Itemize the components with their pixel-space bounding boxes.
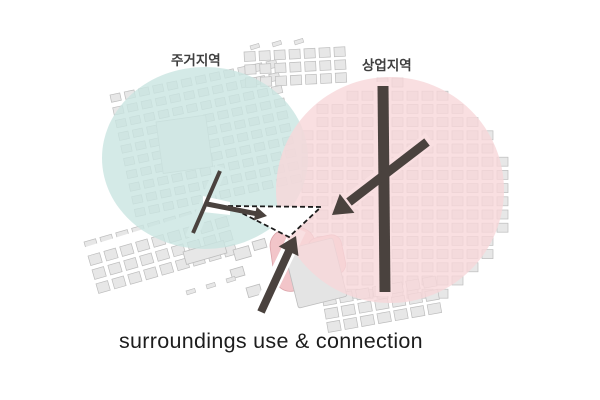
building — [360, 314, 375, 326]
building — [112, 276, 126, 289]
building — [319, 47, 330, 57]
street-dash-building — [272, 40, 282, 46]
building — [497, 223, 508, 232]
building — [290, 75, 301, 85]
building — [128, 271, 142, 284]
building — [358, 301, 373, 313]
building — [289, 49, 300, 59]
building — [394, 309, 409, 321]
street-dash-building — [250, 43, 260, 49]
building — [377, 311, 392, 323]
building — [244, 51, 255, 61]
building — [259, 51, 270, 61]
building — [110, 93, 121, 102]
building — [108, 262, 122, 275]
building — [305, 74, 316, 84]
building — [92, 267, 106, 280]
diagram-caption: surroundings use & connection — [119, 329, 423, 353]
diagram-canvas: 주거지역 상업지역 surroundings use & connection — [0, 0, 600, 400]
building — [427, 303, 442, 315]
building — [341, 304, 356, 316]
street-dash-building — [226, 276, 236, 282]
site-analysis-diagram: 주거지역 상업지역 surroundings use & connection — [0, 0, 600, 400]
building — [260, 64, 271, 74]
building — [124, 257, 138, 270]
commercial-main-road — [383, 86, 385, 292]
building — [245, 64, 256, 74]
building — [410, 306, 425, 318]
building — [334, 47, 345, 57]
building — [320, 73, 331, 83]
building — [324, 307, 339, 319]
building — [335, 60, 346, 70]
building — [140, 253, 154, 266]
building — [304, 48, 315, 58]
building — [159, 262, 173, 275]
residential-zone-label: 주거지역 — [171, 52, 221, 68]
street-dash-building — [186, 288, 196, 294]
building — [343, 317, 358, 329]
building — [96, 281, 110, 294]
building — [136, 239, 150, 252]
building — [320, 60, 331, 70]
building — [290, 62, 301, 72]
building — [144, 267, 158, 280]
street-dash-building — [294, 38, 304, 44]
building — [275, 76, 286, 86]
building — [155, 248, 169, 261]
commercial-zone-label: 상업지역 — [362, 57, 412, 73]
building — [335, 73, 346, 83]
building — [305, 61, 316, 71]
building — [120, 244, 134, 257]
building — [275, 63, 286, 73]
building — [274, 50, 285, 60]
street-dash-building — [206, 282, 216, 288]
shape-mid-2 — [252, 238, 267, 250]
